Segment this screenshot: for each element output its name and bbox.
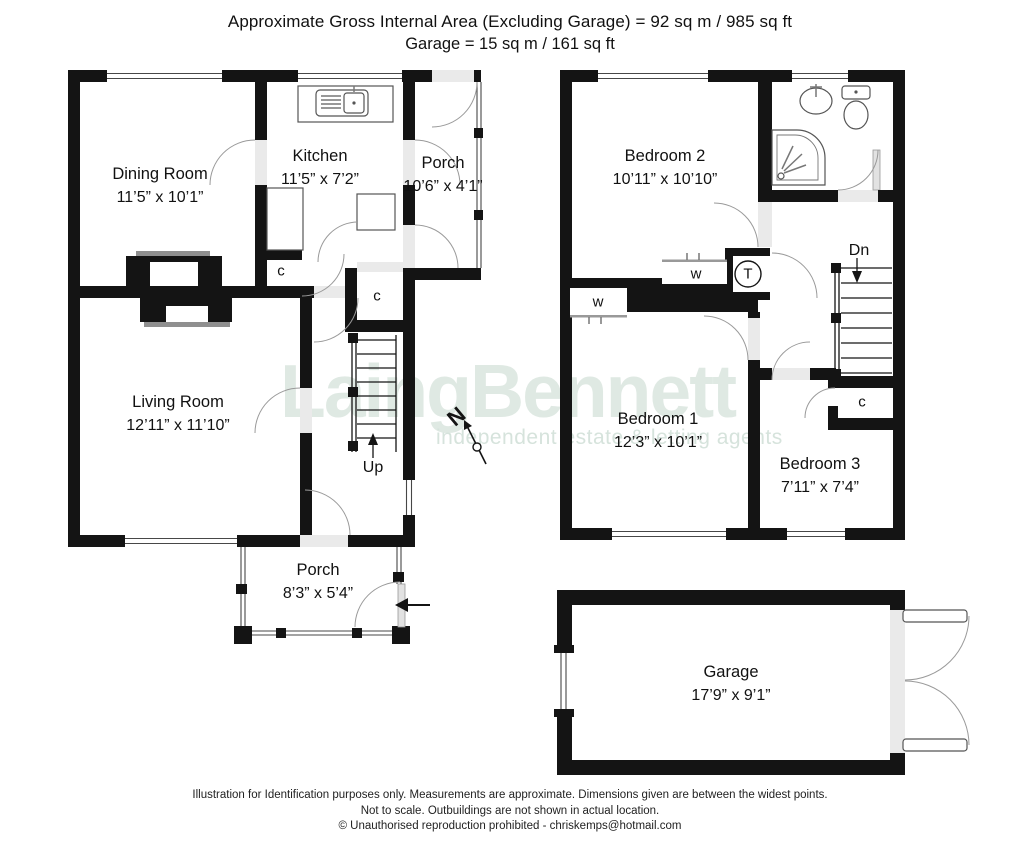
footer: Illustration for Identification purposes…: [0, 788, 1020, 835]
room-label-porch-top: Porch 10’6” x 4’1”: [403, 152, 482, 198]
room-label-bedroom-1: Bedroom 1 12’3” x 10’1”: [614, 408, 702, 454]
stairs-up-label: Up: [363, 459, 383, 477]
shower-icon: [772, 130, 825, 185]
garage-doors: [903, 610, 969, 751]
room-label-porch-bottom: Porch 8’3” x 5’4”: [283, 559, 353, 605]
room-label-bedroom-3: Bedroom 3 7’11” x 7’4”: [780, 453, 861, 499]
header: Approximate Gross Internal Area (Excludi…: [0, 12, 1020, 54]
room-label-bedroom-2: Bedroom 2 10’11” x 10’10”: [613, 145, 718, 191]
down-arrow-icon: [852, 258, 862, 283]
kitchen-sink-icon: [316, 86, 368, 116]
hall-cupboard: [357, 194, 395, 230]
kitchen-unit: [267, 188, 303, 250]
wardrobe-label-bedroom2: w: [691, 266, 702, 283]
north-arrow-icon: N: [442, 402, 486, 464]
stairs-down: [831, 258, 892, 379]
garage-window: [554, 645, 574, 717]
footer-line3: © Unauthorised reproduction prohibited -…: [0, 819, 1020, 835]
tank-label: T: [743, 266, 752, 283]
stairs-down-label: Dn: [849, 242, 869, 260]
toilet-icon: [842, 86, 870, 129]
header-line2: Garage = 15 sq m / 161 sq ft: [0, 35, 1020, 54]
wardrobe-label-bedroom1: w: [593, 294, 604, 311]
floorplan-page: Approximate Gross Internal Area (Excludi…: [0, 0, 1020, 846]
closet-label-first: c: [858, 394, 866, 411]
stairs-up: [348, 333, 396, 458]
footer-line1: Illustration for Identification purposes…: [0, 788, 1020, 804]
up-arrow-icon: [368, 433, 378, 458]
room-label-dining-room: Dining Room 11’5” x 10’1”: [112, 163, 207, 209]
room-label-kitchen: Kitchen 11’5” x 7’2”: [281, 145, 359, 191]
ground-walls: [68, 70, 481, 547]
header-line1: Approximate Gross Internal Area (Excludi…: [0, 12, 1020, 32]
room-label-living-room: Living Room 12’11” x 11’10”: [126, 391, 229, 437]
bathroom-sink-icon: [800, 84, 832, 114]
footer-line2: Not to scale. Outbuildings are not shown…: [0, 804, 1020, 820]
closet-label-ground-2: c: [373, 288, 381, 305]
room-label-garage: Garage 17’9” x 9’1”: [691, 661, 770, 707]
closet-label-ground-1: c: [277, 263, 285, 280]
